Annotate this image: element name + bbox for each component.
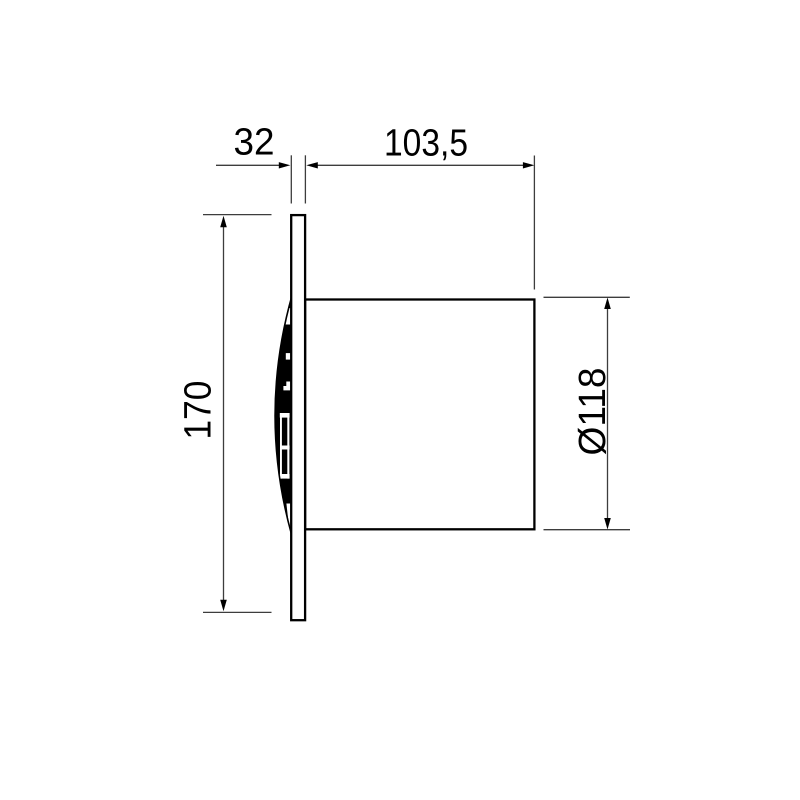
svg-text:103,5: 103,5 xyxy=(384,122,468,164)
svg-text:Ø118: Ø118 xyxy=(572,368,614,456)
svg-text:32: 32 xyxy=(234,121,275,163)
svg-text:170: 170 xyxy=(177,381,219,440)
